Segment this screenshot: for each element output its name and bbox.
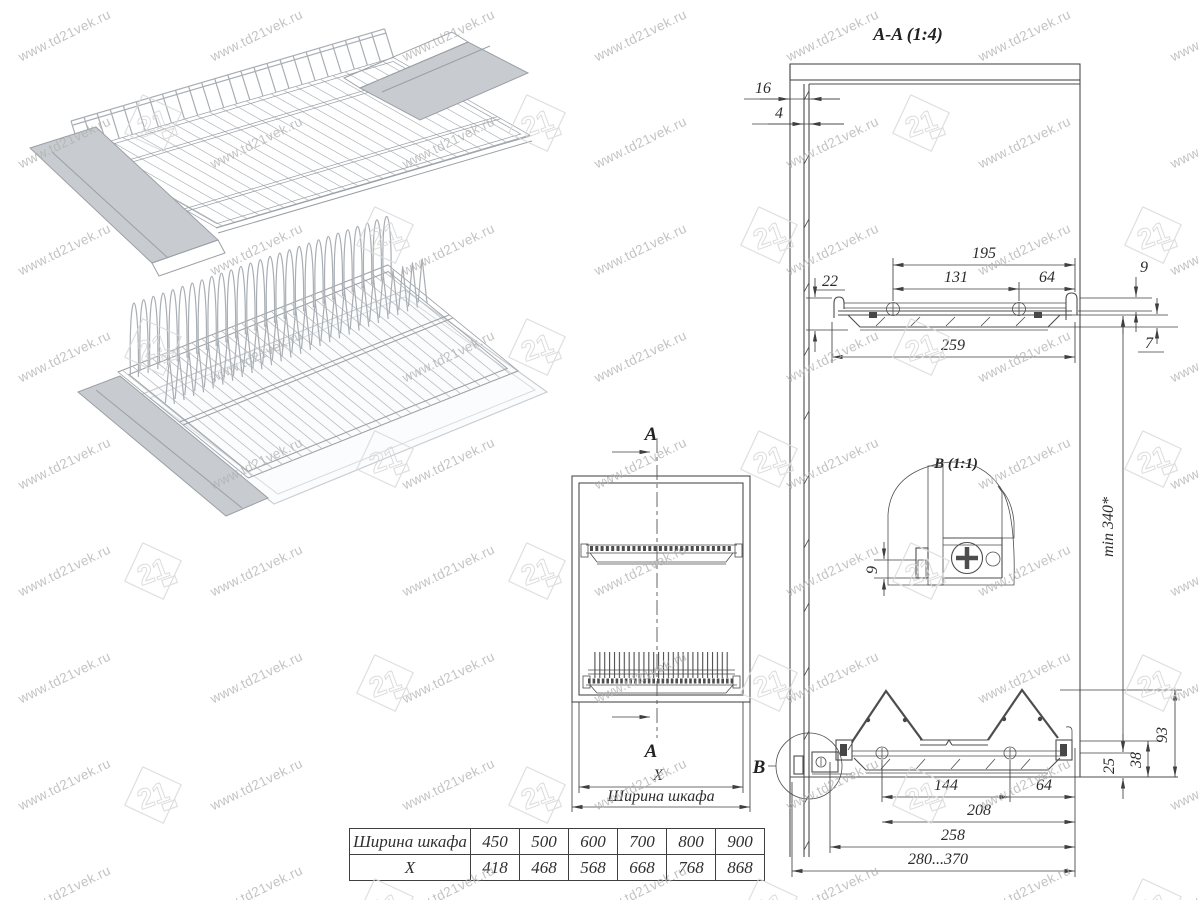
dim-258: 258 — [941, 827, 965, 844]
upper-tray-section — [834, 293, 1077, 330]
table-cell: 768 — [667, 855, 716, 881]
technical-drawing: A A X Ширина шкафа A-A (1:4) 16 4 — [0, 0, 1200, 900]
size-table: Ширина шкафа 450 500 600 700 800 900 X 4… — [349, 828, 765, 881]
dim-131: 131 — [944, 269, 968, 286]
table-cell: 600 — [569, 829, 618, 855]
lower-tray-section — [794, 690, 1072, 774]
table-cell: 800 — [667, 829, 716, 855]
table-cell: 668 — [618, 855, 667, 881]
table-cell: 500 — [520, 829, 569, 855]
detail-view-b: B (1:1) 9 — [864, 456, 1014, 596]
dim-min-340: min 340* — [1100, 497, 1117, 557]
table-cell: Ширина шкафа — [350, 829, 471, 855]
cabinet-top — [790, 64, 1080, 80]
dim-4: 4 — [775, 105, 783, 122]
table-cell: 568 — [569, 855, 618, 881]
x-dim-label: X — [652, 767, 664, 784]
section-label-bottom: A — [644, 741, 658, 762]
table-cell: 700 — [618, 829, 667, 855]
dim-195: 195 — [972, 245, 996, 262]
table-row-x: X 418 468 568 668 768 868 — [350, 855, 765, 881]
dim-9-top: 9 — [1140, 259, 1148, 276]
detail-b-callout-label: B — [752, 757, 766, 778]
dim-25: 25 — [1101, 758, 1118, 774]
dim-64-top: 64 — [1039, 269, 1055, 286]
table-cell: 468 — [520, 855, 569, 881]
dim-93: 93 — [1154, 727, 1171, 743]
dim-range-280-370: 280...370 — [908, 851, 968, 868]
table-cell: 868 — [716, 855, 765, 881]
dim-144: 144 — [934, 777, 958, 794]
section-view: A-A (1:4) 16 4 — [744, 24, 1182, 877]
dim-259: 259 — [941, 337, 965, 354]
detail-dim-9: 9 — [864, 566, 881, 574]
dim-16: 16 — [755, 80, 771, 97]
dim-64-bottom: 64 — [1036, 777, 1052, 794]
front-view: A A X Ширина шкафа — [572, 424, 750, 812]
table-cell: 900 — [716, 829, 765, 855]
section-title: A-A (1:4) — [872, 24, 943, 45]
section-label-top: A — [644, 424, 658, 445]
table-cell: X — [350, 855, 471, 881]
table-cell: 450 — [471, 829, 520, 855]
table-row-width: Ширина шкафа 450 500 600 700 800 900 — [350, 829, 765, 855]
detail-title: B (1:1) — [933, 456, 978, 472]
dim-208: 208 — [967, 802, 991, 819]
table-cell: 418 — [471, 855, 520, 881]
product-photo-cup-tray — [30, 29, 532, 276]
product-photo-plate-rack — [78, 216, 547, 516]
dim-7: 7 — [1145, 335, 1154, 352]
drawing-sheet: A A X Ширина шкафа A-A (1:4) 16 4 — [0, 0, 1200, 900]
dim-22: 22 — [822, 273, 838, 290]
dim-38: 38 — [1128, 752, 1145, 769]
cabinet-width-label: Ширина шкафа — [606, 788, 714, 805]
